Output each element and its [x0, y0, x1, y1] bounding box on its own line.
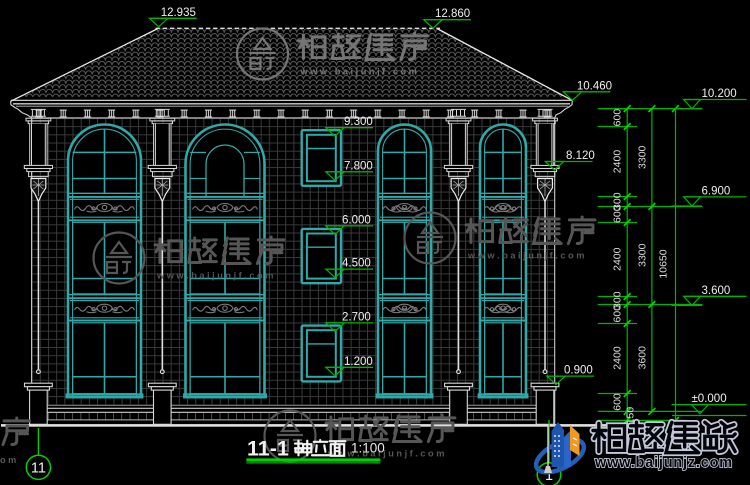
svg-text:6.900: 6.900 [702, 185, 731, 197]
svg-text:7.800: 7.800 [344, 160, 373, 172]
svg-text:10650: 10650 [657, 249, 669, 278]
svg-text:600: 600 [612, 393, 624, 411]
svg-text:w w w . b a i j u n j f . c o: w w w . b a i j u n j f . c o m [467, 251, 584, 261]
svg-text:12.935: 12.935 [161, 7, 196, 19]
svg-text:2400: 2400 [612, 150, 624, 174]
svg-text:8.120: 8.120 [566, 150, 595, 162]
svg-text:600: 600 [612, 205, 624, 223]
svg-text:1.200: 1.200 [344, 356, 373, 368]
svg-text:10.200: 10.200 [702, 88, 737, 100]
svg-text:9.300: 9.300 [344, 116, 373, 128]
svg-text:10.460: 10.460 [577, 80, 612, 92]
svg-text:600: 600 [612, 109, 624, 127]
svg-text:2400: 2400 [612, 346, 624, 370]
svg-text:3300: 3300 [636, 243, 648, 267]
svg-text:1:100: 1:100 [351, 441, 385, 456]
svg-text:3600: 3600 [636, 346, 648, 370]
svg-text:w w w . b a i j u n j f . c o: w w w . b a i j u n j f . c o m [300, 67, 417, 77]
svg-text:11-1: 11-1 [247, 437, 289, 461]
svg-text:600: 600 [612, 305, 624, 323]
svg-text:o m: o m [0, 455, 16, 465]
svg-text:w w w . b a i j u n j f . c o: w w w . b a i j u n j f . c o m [156, 271, 273, 281]
svg-text:12.860: 12.860 [435, 8, 470, 20]
svg-text:3.600: 3.600 [702, 285, 731, 297]
svg-text:4.500: 4.500 [342, 258, 371, 270]
svg-text:3300: 3300 [636, 145, 648, 169]
svg-text:2400: 2400 [612, 247, 624, 271]
svg-text:www.baijunjz.com: www.baijunjz.com [594, 455, 733, 471]
svg-text:±0.000: ±0.000 [692, 393, 727, 405]
svg-text:6.000: 6.000 [342, 214, 371, 226]
svg-text:2.700: 2.700 [342, 311, 371, 323]
svg-text:11: 11 [31, 461, 46, 477]
svg-text:0.900: 0.900 [564, 365, 593, 377]
